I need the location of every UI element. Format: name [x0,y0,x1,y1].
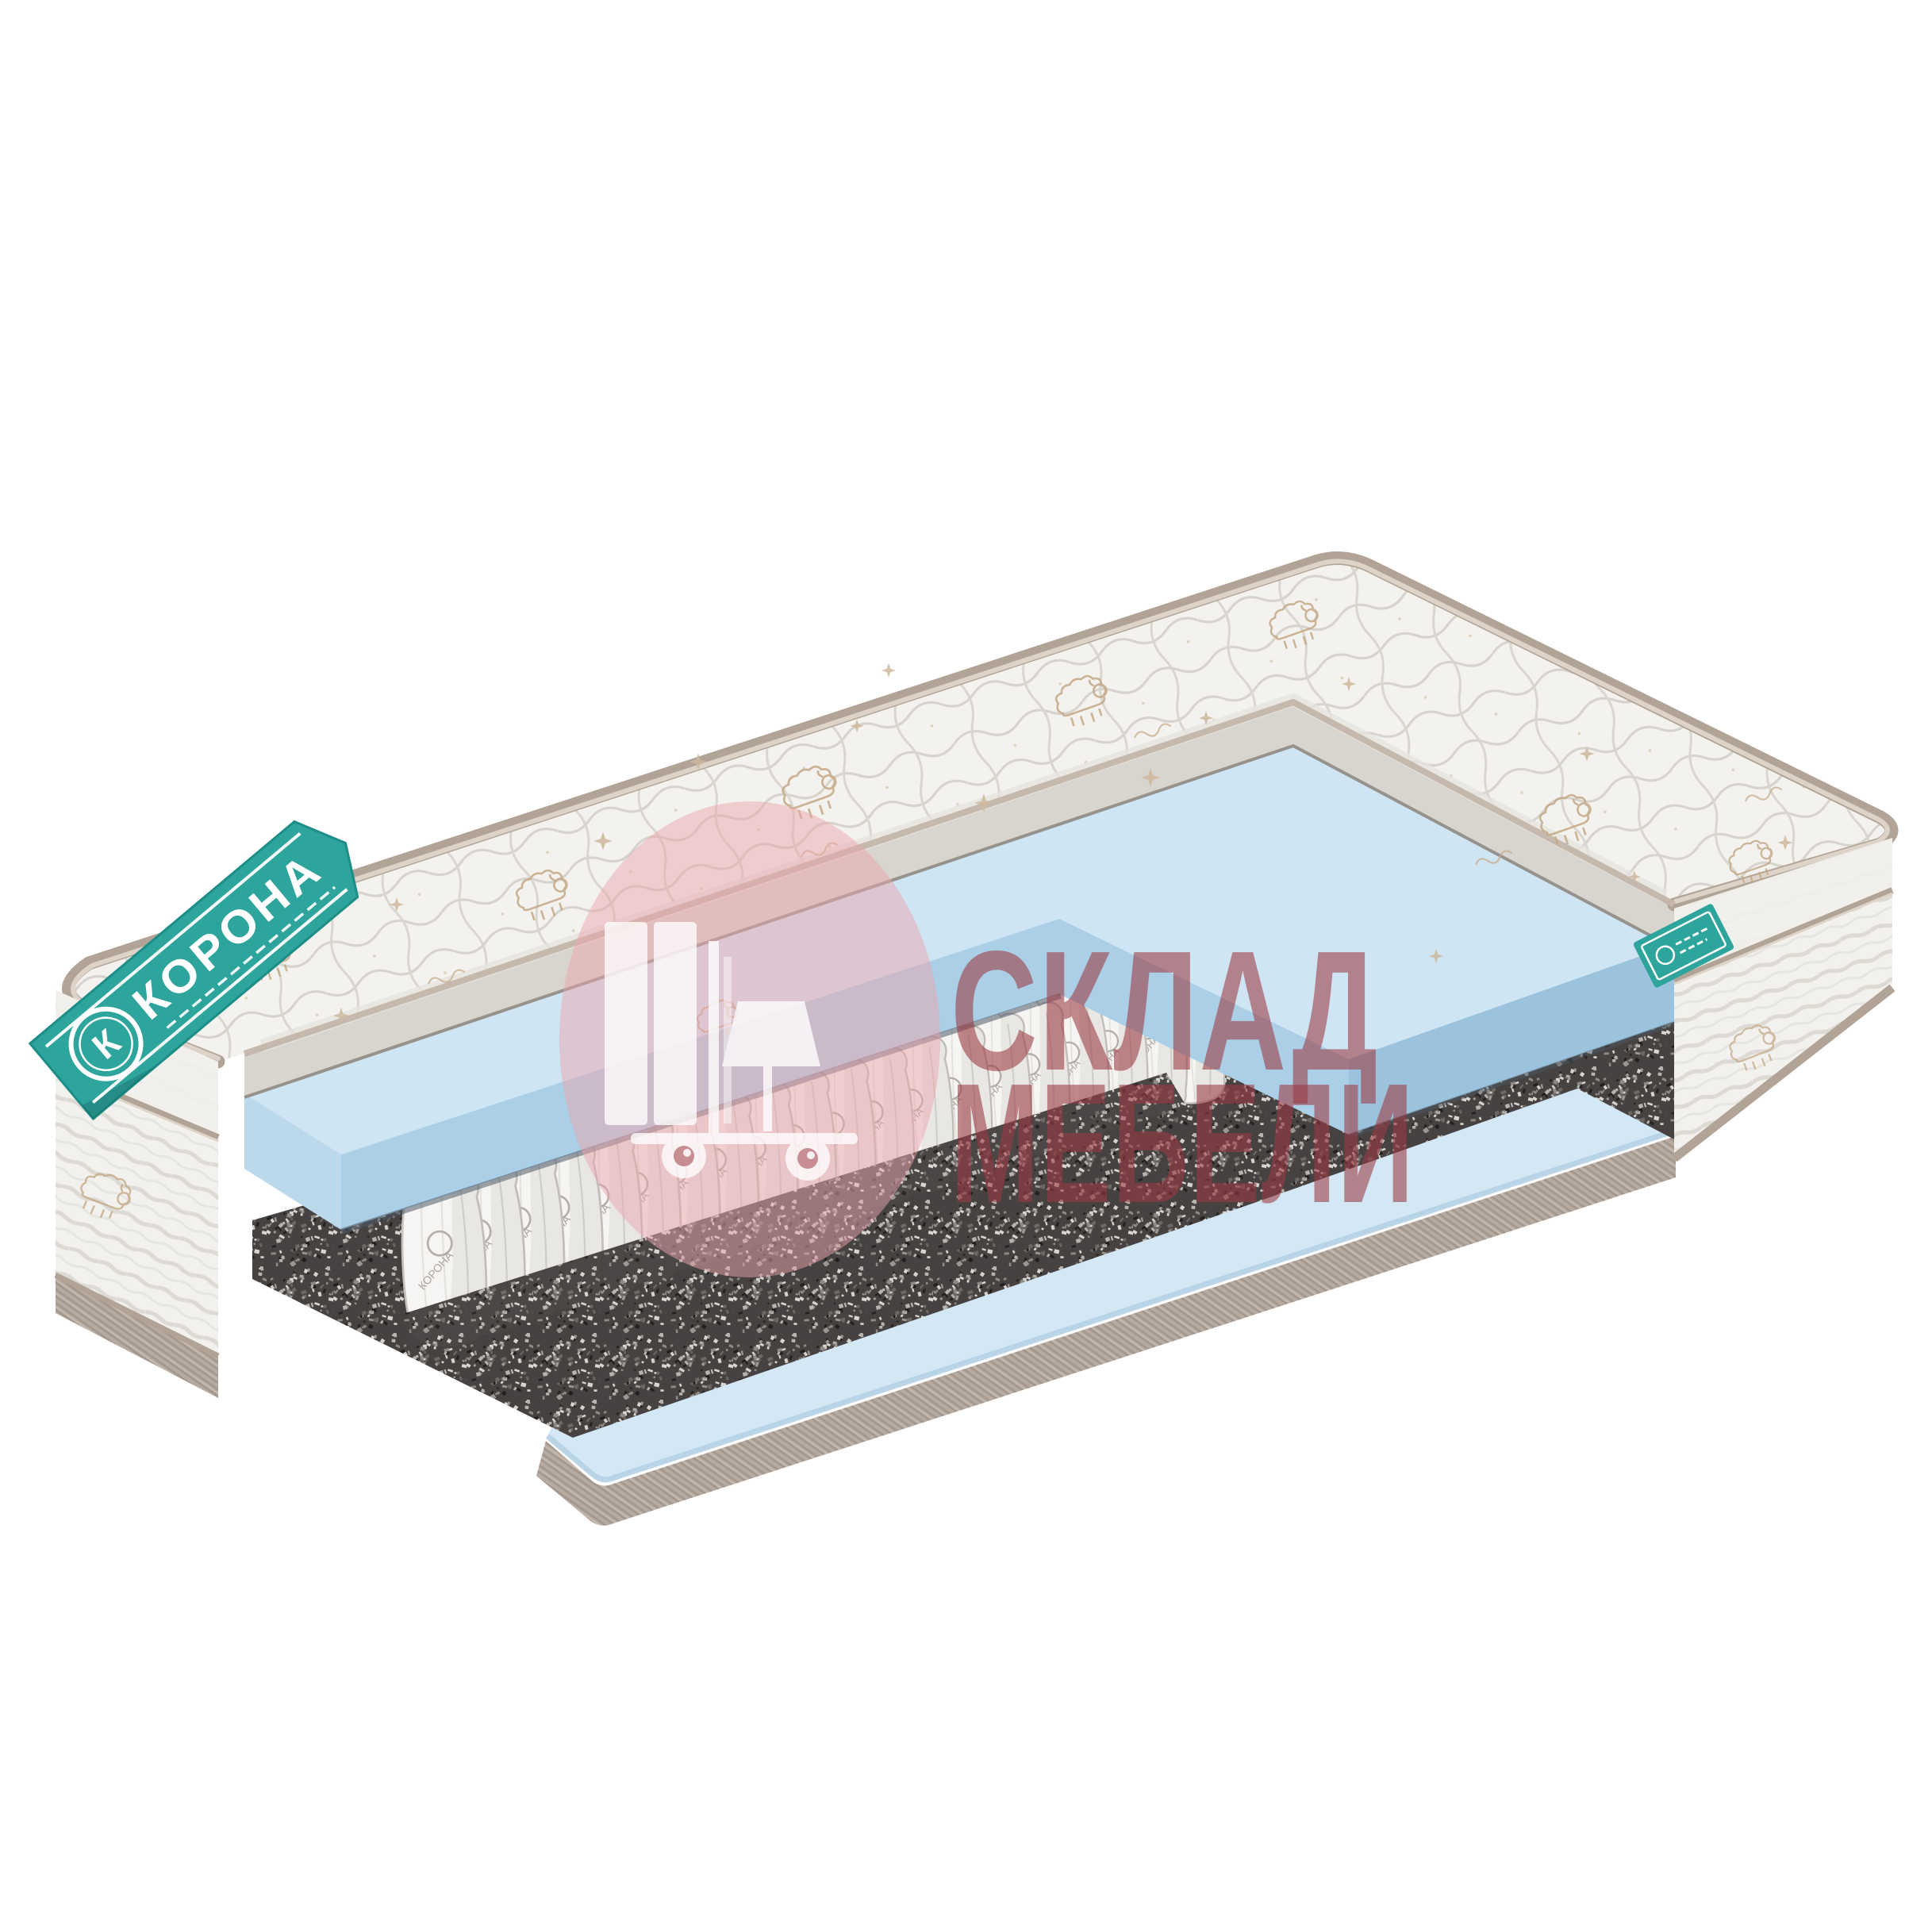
watermark-text-line2: МЕБЕЛИ [951,1047,1415,1239]
product-photo-mattress-cutaway: КОРОНА [0,0,1932,1932]
mattress-illustration: КОРОНА [0,0,1932,1932]
